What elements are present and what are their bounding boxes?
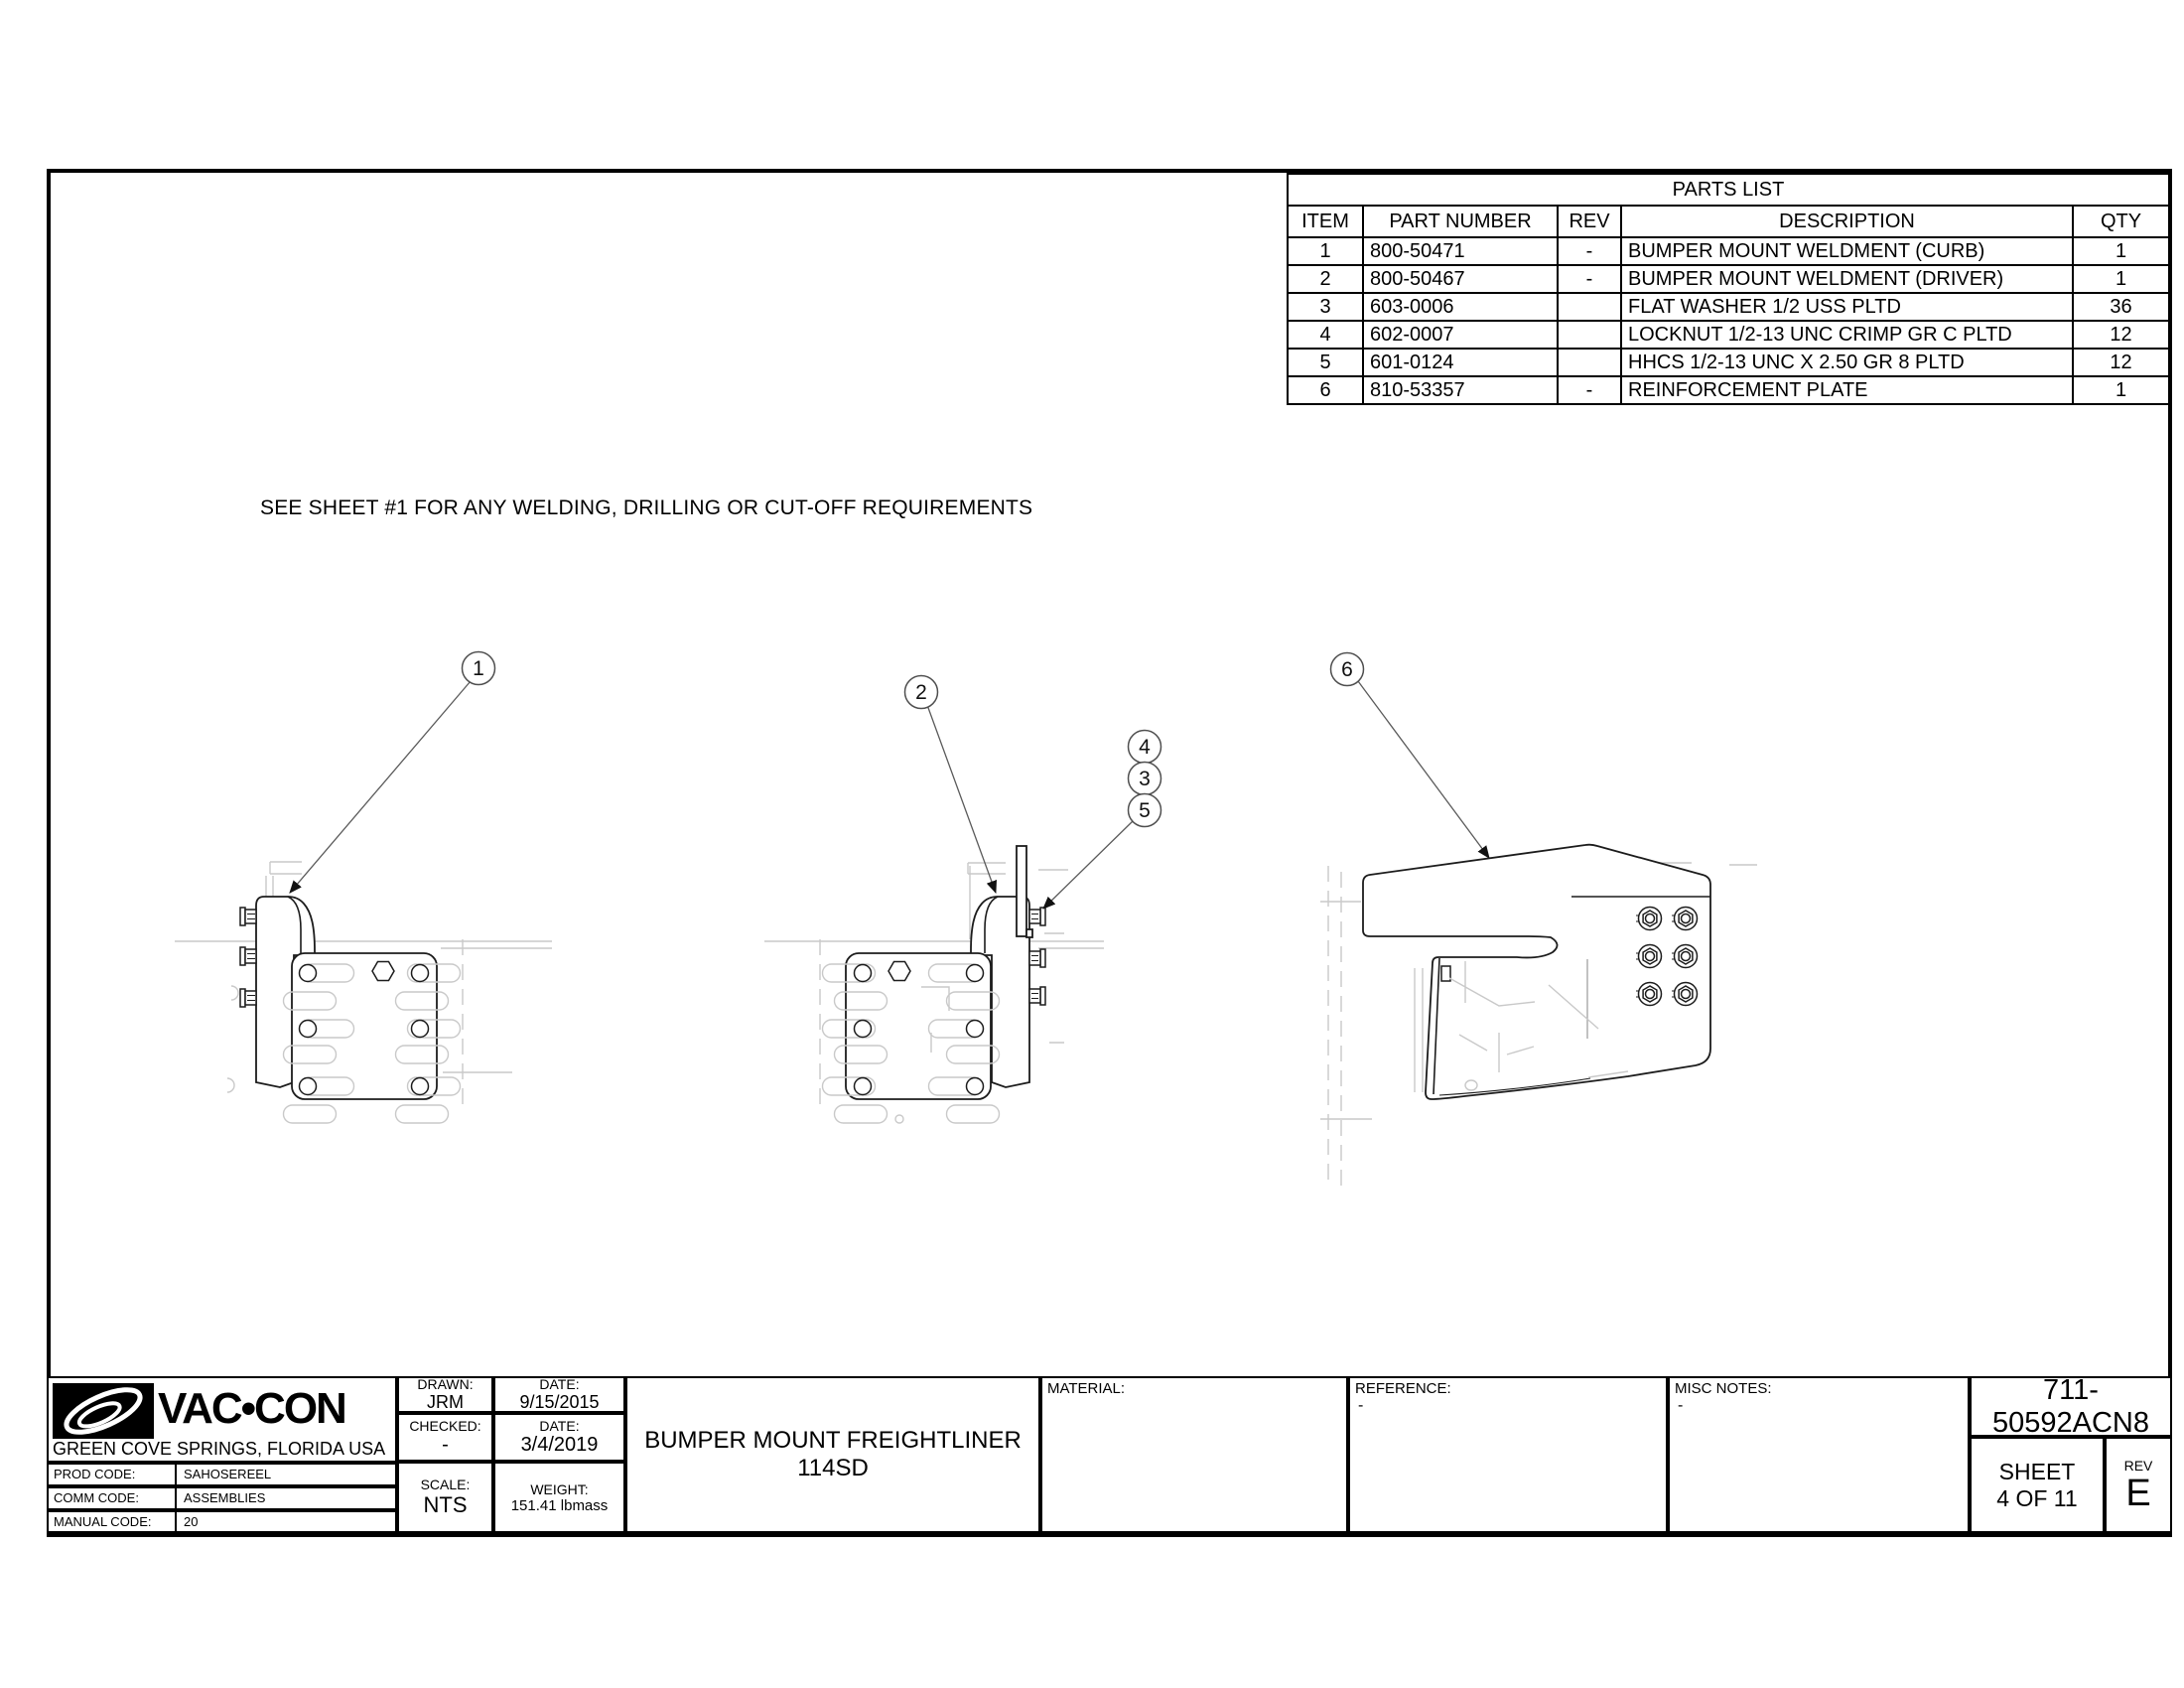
manual-code-row: MANUAL CODE: 20 <box>47 1510 397 1533</box>
col-header-qty: QTY <box>2073 206 2169 237</box>
drawn-date-label: DATE: <box>539 1376 579 1392</box>
manual-code-label: MANUAL CODE: <box>49 1512 177 1531</box>
weight-label: WEIGHT: <box>530 1481 588 1497</box>
vaccon-swoosh-icon <box>53 1383 154 1439</box>
checked-date-value: 3/4/2019 <box>521 1434 599 1457</box>
reference-cell: REFERENCE: - <box>1348 1376 1668 1533</box>
drawn-date-value: 9/15/2015 <box>519 1392 599 1413</box>
sheet-label: SHEET <box>1999 1459 2076 1485</box>
scale-value: NTS <box>424 1492 468 1518</box>
misc-notes-value: - <box>1675 1397 1683 1414</box>
cell-item: 5 <box>1288 349 1363 376</box>
cell-rev: - <box>1558 376 1621 404</box>
leader-lines <box>290 681 1489 909</box>
cell-item: 2 <box>1288 265 1363 293</box>
cell-qty: 1 <box>2073 237 2169 265</box>
rev-value: E <box>2125 1474 2150 1513</box>
parts-list-title-row: PARTS LIST <box>1288 174 2169 206</box>
comm-code-label: COMM CODE: <box>49 1488 177 1508</box>
parts-row: 1 800-50471 - BUMPER MOUNT WELDMENT (CUR… <box>1288 237 2169 265</box>
checked-date-cell: DATE: 3/4/2019 <box>493 1413 625 1462</box>
parts-list-table: PARTS LIST ITEM PART NUMBER REV DESCRIPT… <box>1287 173 2170 405</box>
company-logo-text: VAC•CON <box>158 1384 345 1434</box>
rev-label: REV <box>2124 1458 2153 1474</box>
balloon-4: 4 <box>1129 731 1161 764</box>
weight-value: 151.41 lbmass <box>511 1497 609 1514</box>
prod-code-label: PROD CODE: <box>49 1465 177 1484</box>
col-header-description: DESCRIPTION <box>1621 206 2073 237</box>
reference-value: - <box>1355 1397 1363 1414</box>
balloon-3: 3 <box>1129 763 1161 795</box>
cell-item: 4 <box>1288 321 1363 349</box>
reference-label: REFERENCE: <box>1355 1380 1661 1397</box>
welding-note: SEE SHEET #1 FOR ANY WELDING, DRILLING O… <box>260 496 1032 520</box>
cell-description: BUMPER MOUNT WELDMENT (CURB) <box>1621 237 2073 265</box>
hex-bolt-head <box>888 962 910 981</box>
cell-part-number: 601-0124 <box>1363 349 1558 376</box>
balloon-5-label: 5 <box>1139 799 1151 822</box>
material-label: MATERIAL: <box>1047 1380 1341 1397</box>
balloon-3-label: 3 <box>1139 768 1151 790</box>
drawn-cell: DRAWN: JRM <box>397 1376 493 1413</box>
balloon-4-label: 4 <box>1139 736 1151 759</box>
drawn-value: JRM <box>427 1392 464 1413</box>
cell-description: REINFORCEMENT PLATE <box>1621 376 2073 404</box>
material-value <box>1047 1397 1050 1414</box>
manual-code-value: 20 <box>184 1512 198 1529</box>
balloon-2: 2 <box>905 676 938 709</box>
checked-label: CHECKED: <box>409 1418 480 1434</box>
hex-bolt-head <box>372 962 394 981</box>
drawn-label: DRAWN: <box>417 1376 473 1392</box>
company-address: GREEN COVE SPRINGS, FLORIDA USA <box>53 1439 385 1460</box>
weight-cell: WEIGHT: 151.41 lbmass <box>493 1462 625 1533</box>
prod-code-row: PROD CODE: SAHOSEREEL <box>47 1463 397 1486</box>
balloon-2-label: 2 <box>915 681 927 704</box>
misc-notes-label: MISC NOTES: <box>1675 1380 1963 1397</box>
company-logo-cell: VAC•CON GREEN COVE SPRINGS, FLORIDA USA <box>47 1376 397 1463</box>
cell-item: 1 <box>1288 237 1363 265</box>
prod-code-value: SAHOSEREEL <box>184 1465 271 1481</box>
scale-cell: SCALE: NTS <box>397 1462 493 1533</box>
drawing-title-cell: BUMPER MOUNT FREIGHTLINER 114SD <box>625 1376 1040 1533</box>
cell-description: BUMPER MOUNT WELDMENT (DRIVER) <box>1621 265 2073 293</box>
scale-label: SCALE: <box>421 1477 471 1492</box>
parts-row: 5 601-0124 HHCS 1/2-13 UNC X 2.50 GR 8 P… <box>1288 349 2169 376</box>
parts-row: 6 810-53357 - REINFORCEMENT PLATE 1 <box>1288 376 2169 404</box>
cell-qty: 12 <box>2073 349 2169 376</box>
parts-list-title: PARTS LIST <box>1288 174 2169 206</box>
cell-rev <box>1558 321 1621 349</box>
cell-part-number: 602-0007 <box>1363 321 1558 349</box>
comm-code-value: ASSEMBLIES <box>184 1488 265 1505</box>
sheet-cell: SHEET 4 OF 11 <box>1970 1437 2105 1533</box>
parts-row: 4 602-0007 LOCKNUT 1/2-13 UNC CRIMP GR C… <box>1288 321 2169 349</box>
cell-item: 6 <box>1288 376 1363 404</box>
cell-rev <box>1558 293 1621 321</box>
drawn-date-cell: DATE: 9/15/2015 <box>493 1376 625 1413</box>
parts-list-header-row: ITEM PART NUMBER REV DESCRIPTION QTY <box>1288 206 2169 237</box>
checked-value: - <box>442 1434 449 1457</box>
drawing-title: BUMPER MOUNT FREIGHTLINER 114SD <box>627 1427 1038 1482</box>
cell-part-number: 800-50471 <box>1363 237 1558 265</box>
cell-description: LOCKNUT 1/2-13 UNC CRIMP GR C PLTD <box>1621 321 2073 349</box>
cell-item: 3 <box>1288 293 1363 321</box>
balloon-1: 1 <box>463 652 495 685</box>
col-header-item: ITEM <box>1288 206 1363 237</box>
title-block: VAC•CON GREEN COVE SPRINGS, FLORIDA USA … <box>47 1376 2172 1533</box>
checked-cell: CHECKED: - <box>397 1413 493 1462</box>
drawing-number-cell: 711-50592ACN8 <box>1970 1376 2172 1437</box>
col-header-part-number: PART NUMBER <box>1363 206 1558 237</box>
comm-code-row: COMM CODE: ASSEMBLIES <box>47 1486 397 1510</box>
parts-row: 3 603-0006 FLAT WASHER 1/2 USS PLTD 36 <box>1288 293 2169 321</box>
cell-qty: 1 <box>2073 376 2169 404</box>
view-bumper-mount-curb <box>175 862 552 1123</box>
drawing-number: 711-50592ACN8 <box>1972 1374 2170 1440</box>
parts-row: 2 800-50467 - BUMPER MOUNT WELDMENT (DRI… <box>1288 265 2169 293</box>
cell-qty: 12 <box>2073 321 2169 349</box>
engineering-drawing-sheet: 1 2 4 3 5 6 SEE SHEET #1 FOR ANY WELDING… <box>0 0 2184 1688</box>
cell-rev: - <box>1558 265 1621 293</box>
balloon-5: 5 <box>1129 794 1161 827</box>
balloon-1-label: 1 <box>473 657 484 680</box>
cell-description: HHCS 1/2-13 UNC X 2.50 GR 8 PLTD <box>1621 349 2073 376</box>
material-cell: MATERIAL: <box>1040 1376 1348 1533</box>
view-bumper-mount-driver <box>764 846 1104 1123</box>
reinforcement-plate-edge <box>1017 846 1026 936</box>
checked-date-label: DATE: <box>539 1418 579 1434</box>
cell-rev: - <box>1558 237 1621 265</box>
cell-qty: 36 <box>2073 293 2169 321</box>
rev-cell: REV E <box>2105 1437 2172 1533</box>
cell-qty: 1 <box>2073 265 2169 293</box>
cell-part-number: 603-0006 <box>1363 293 1558 321</box>
cell-part-number: 800-50467 <box>1363 265 1558 293</box>
cell-description: FLAT WASHER 1/2 USS PLTD <box>1621 293 2073 321</box>
view-reinforcement-plate <box>1320 845 1757 1187</box>
balloon-6-label: 6 <box>1341 658 1353 681</box>
cell-rev <box>1558 349 1621 376</box>
misc-notes-cell: MISC NOTES: - <box>1668 1376 1970 1533</box>
balloon-6: 6 <box>1331 653 1364 686</box>
col-header-rev: REV <box>1558 206 1621 237</box>
sheet-value: 4 OF 11 <box>1996 1485 2077 1512</box>
cell-part-number: 810-53357 <box>1363 376 1558 404</box>
